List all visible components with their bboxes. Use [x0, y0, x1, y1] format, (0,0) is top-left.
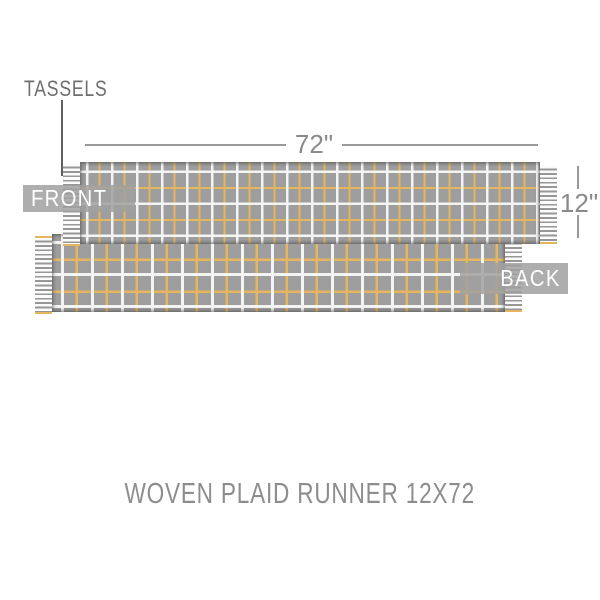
product-caption: WOVEN PLAID RUNNER 12X72 — [0, 478, 600, 511]
back-runner-fabric — [52, 234, 505, 312]
height-dimension-line-bottom — [577, 215, 579, 238]
width-dimension-line-left — [85, 144, 286, 146]
product-dimension-diagram: TASSELS 72" 12" FRONT BACK WOVEN PLAID R… — [0, 0, 600, 600]
back-label-text: BACK — [501, 265, 561, 292]
front-label-box: FRONT — [23, 185, 135, 212]
front-runner-right-tassels — [540, 166, 557, 244]
product-caption-text: WOVEN PLAID RUNNER 12X72 — [125, 478, 476, 511]
height-dimension-label: 12" — [558, 188, 600, 219]
tassels-annotation-label: TASSELS — [24, 76, 108, 102]
width-dimension-line-right — [342, 144, 538, 146]
runner-front-view — [63, 162, 557, 244]
runner-back-view — [35, 234, 522, 312]
front-label-text: FRONT — [31, 185, 107, 212]
width-dimension-label: 72" — [282, 129, 346, 160]
front-runner-fabric — [80, 162, 540, 244]
back-label-box: BACK — [460, 263, 568, 294]
back-runner-left-tassels — [35, 236, 52, 314]
height-dimension-line-top — [577, 166, 579, 189]
